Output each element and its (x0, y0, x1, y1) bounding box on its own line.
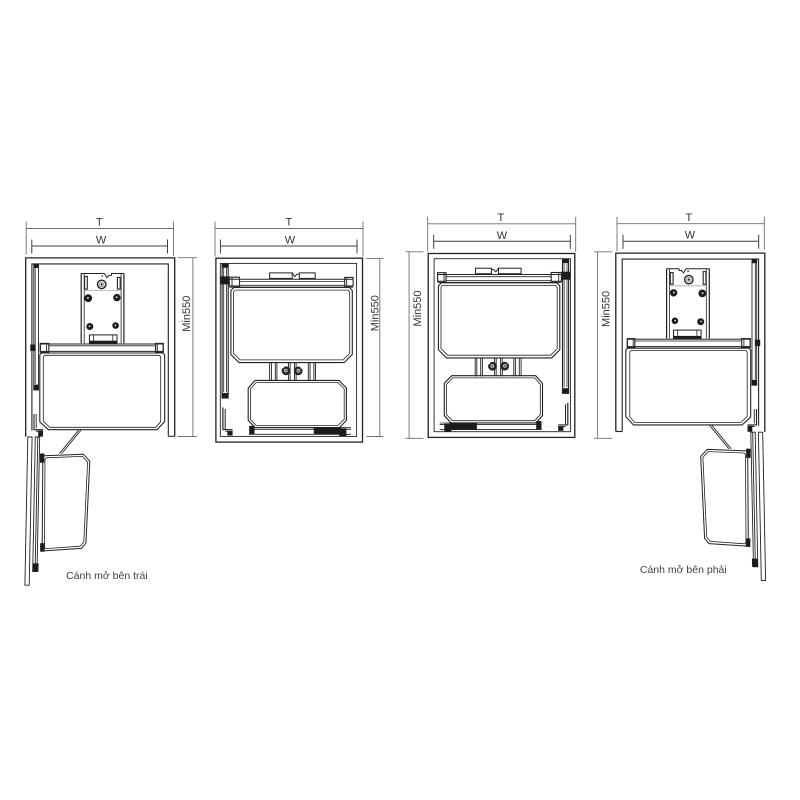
svg-text:W: W (685, 230, 696, 242)
svg-text:W: W (497, 230, 508, 242)
svg-text:Min550: Min550 (412, 290, 424, 326)
svg-text:T: T (498, 212, 505, 224)
svg-text:W: W (96, 235, 107, 247)
svg-text:W: W (285, 235, 296, 247)
svg-text:T: T (96, 217, 103, 229)
svg-text:Min550: Min550 (181, 296, 193, 332)
svg-text:Cánh mở bên trái: Cánh mở bên trái (66, 570, 148, 582)
svg-text:Min550: Min550 (370, 295, 382, 331)
svg-text:Min550: Min550 (600, 291, 612, 327)
svg-text:Cánh mở bên phải: Cánh mở bên phải (640, 564, 727, 576)
svg-text:T: T (686, 212, 693, 224)
svg-text:T: T (286, 217, 293, 229)
